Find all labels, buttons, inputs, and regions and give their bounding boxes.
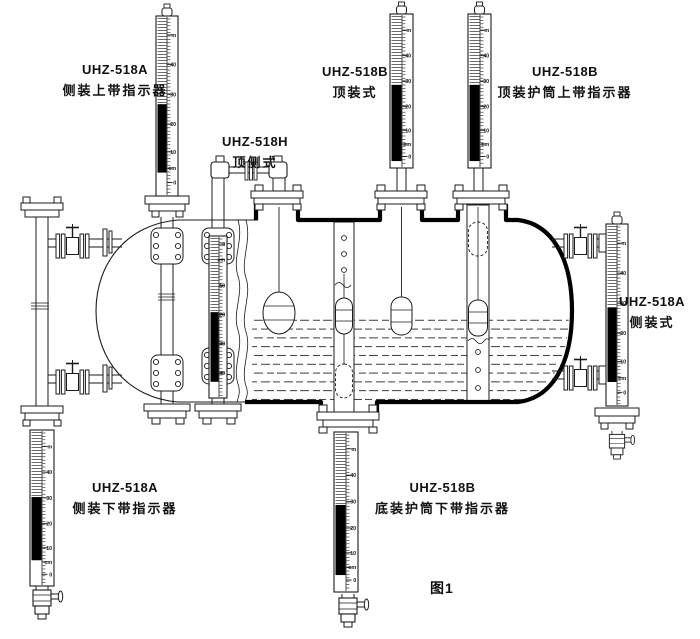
scale-number: 40 (219, 371, 225, 377)
left-chamber (31, 217, 49, 406)
gauge-bottom-tube: m40302010cm0 (334, 432, 358, 592)
scale-number: m (351, 447, 356, 453)
model-code: UHZ-518B (360, 478, 525, 499)
scale-number: 0 (623, 390, 626, 396)
scale-number: m (171, 33, 176, 39)
type-name: 侧装上带指示器 (25, 81, 205, 102)
type-name: 侧装下带指示器 (45, 499, 205, 520)
scale-number: cm (618, 376, 626, 382)
scale-number: 10 (620, 359, 626, 365)
top-side-ball-float (263, 207, 295, 334)
model-code: UHZ-518A (606, 292, 698, 313)
scale-number: cm (217, 257, 225, 263)
scale-number: 40 (350, 473, 356, 479)
bottom-mount-protective-tube (334, 222, 354, 412)
scale-number: 10 (350, 551, 356, 557)
scale-number: 0 (353, 578, 356, 584)
scale-number: 30 (219, 342, 225, 348)
label-bottom-mount-tube-lower-indicator: UHZ-518B 底装护筒下带指示器 (360, 478, 525, 520)
scale-number: 0 (222, 242, 225, 248)
tank-wall-flange (151, 355, 183, 391)
scale-number: 0 (408, 154, 411, 160)
model-code: UHZ-518H (195, 132, 315, 153)
drain-valve (609, 431, 634, 459)
scale-number: cm (403, 142, 411, 148)
right-gauge-bottom-flange (595, 408, 639, 429)
model-code: UHZ-518B (295, 62, 415, 83)
scale-number: 10 (46, 546, 52, 552)
scale-number: cm (168, 166, 176, 172)
label-side-mount-type: UHZ-518A 侧装式 (606, 292, 698, 334)
isolation-valve (56, 224, 89, 258)
model-code: UHZ-518A (25, 60, 205, 81)
scale-number: 20 (405, 104, 411, 110)
model-code: UHZ-518B (485, 62, 645, 83)
scale-number: 10 (170, 150, 176, 156)
scale-number: 40 (405, 54, 411, 60)
indicator-base-flange (145, 196, 189, 217)
scale-number: 40 (46, 470, 52, 476)
label-side-mount-upper-indicator: UHZ-518A 侧装上带指示器 (25, 60, 205, 102)
label-top-side-type: UHZ-518H 顶侧式 (195, 132, 315, 174)
scale-number: 10 (219, 283, 225, 289)
drain-valve (339, 594, 369, 627)
label-side-mount-lower-indicator: UHZ-518A 侧装下带指示器 (45, 478, 205, 520)
scale-number: 0 (49, 572, 52, 578)
scale-number: cm (44, 560, 52, 566)
scale-number: m (484, 28, 489, 34)
scale-number: m (406, 28, 411, 34)
scale-number: 0 (173, 181, 176, 187)
scale-number: 30 (350, 500, 356, 506)
pipe-bottom-flanges (144, 404, 241, 424)
scale-number: 20 (219, 313, 225, 319)
scale-number: 40 (483, 54, 489, 60)
float (336, 298, 353, 334)
isolation-valve (56, 360, 89, 394)
scale-number: cm (481, 142, 489, 148)
label-top-mount-tube-upper-indicator: UHZ-518B 顶装护筒上带指示器 (485, 62, 645, 104)
top-mount-protective-tube (467, 205, 489, 401)
type-name: 顶侧式 (195, 153, 315, 174)
scale-number: m (47, 444, 52, 450)
scale-number: 40 (620, 271, 626, 277)
scale-number: 20 (483, 104, 489, 110)
scale-number: 10 (405, 128, 411, 134)
isolation-valve (564, 356, 597, 390)
tank-wall-flange (151, 228, 183, 264)
type-name: 顶装式 (295, 83, 415, 104)
scale-number: cm (348, 565, 356, 571)
gauge-stems (397, 168, 483, 191)
isolation-valve (564, 224, 597, 258)
scale-number: 20 (46, 522, 52, 528)
level-bar (336, 505, 346, 575)
break-line (244, 220, 247, 402)
scale-number: 20 (350, 526, 356, 532)
label-top-mount: UHZ-518B 顶装式 (295, 62, 415, 104)
drain-valve (33, 586, 63, 619)
float (469, 300, 488, 336)
level-bar (32, 497, 42, 560)
scale-number: 20 (170, 122, 176, 128)
figure-caption: 图1 (430, 578, 454, 598)
level-bar (211, 312, 219, 382)
scale-number: 10 (483, 128, 489, 134)
gauge-top-side-scale: 0cm10203040 (209, 236, 227, 398)
scale-number: m (621, 241, 626, 247)
top-mounted-float (391, 207, 412, 335)
level-bar (158, 104, 167, 172)
break-line (236, 220, 239, 402)
scale-number: 0 (486, 154, 489, 160)
type-name: 底装护筒下带指示器 (360, 499, 525, 520)
type-name: 侧装式 (606, 313, 698, 334)
type-name: 顶装护筒上带指示器 (485, 83, 645, 104)
level-bar (470, 85, 480, 161)
figure-1-level-gauge-installation-diagram: m40302010cm0m40302010cm0m40302010cm0m403… (0, 0, 700, 639)
model-code: UHZ-518A (45, 478, 205, 499)
